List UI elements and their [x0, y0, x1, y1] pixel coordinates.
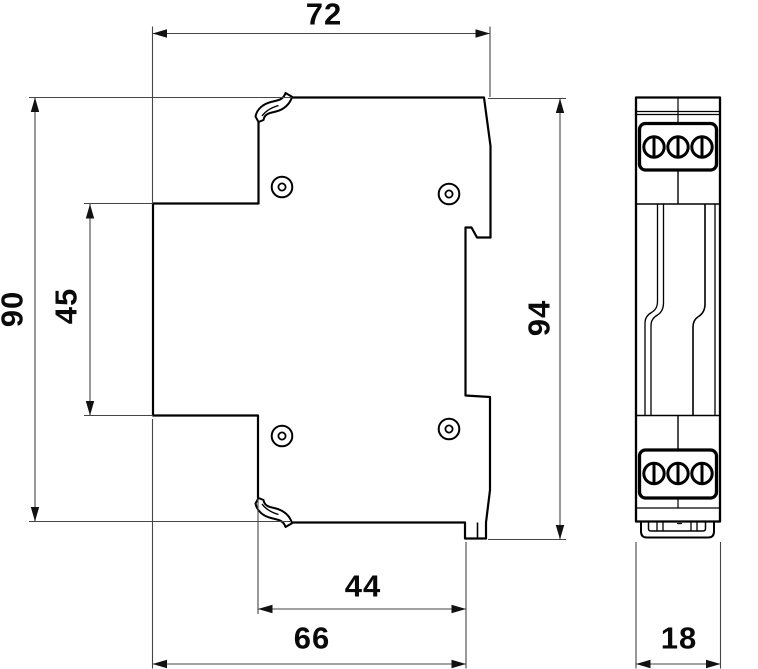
dim-label-18: 18: [661, 623, 697, 654]
front-channel-right: [693, 204, 705, 416]
dim-label-44: 44: [345, 571, 381, 602]
screw-hole-icon: [272, 426, 293, 447]
dim-label-94: 94: [524, 300, 555, 336]
front-mid-lines: [636, 170, 720, 450]
side-body-right-outline: [290, 98, 491, 539]
front-top-seams: [636, 98, 720, 124]
screw-hole-icon: [272, 177, 293, 198]
side-view: [153, 93, 491, 539]
front-view: [636, 98, 720, 538]
terminal-screws-bottom: [644, 463, 712, 483]
dim-label-45: 45: [51, 288, 82, 324]
dim-label-72: 72: [306, 0, 342, 30]
dim-label-66: 66: [294, 623, 330, 654]
terminal-screws-top: [644, 137, 712, 157]
front-channel-left: [645, 204, 664, 416]
dim-label-90: 90: [0, 291, 28, 327]
drawing-canvas: 72 90 45 94 44 66 18: [0, 0, 758, 669]
screw-hole-icon: [439, 184, 460, 205]
din-clip-ribs: [657, 522, 697, 532]
side-body-left-outline: [153, 122, 259, 498]
screw-hole-icon: [439, 419, 460, 440]
